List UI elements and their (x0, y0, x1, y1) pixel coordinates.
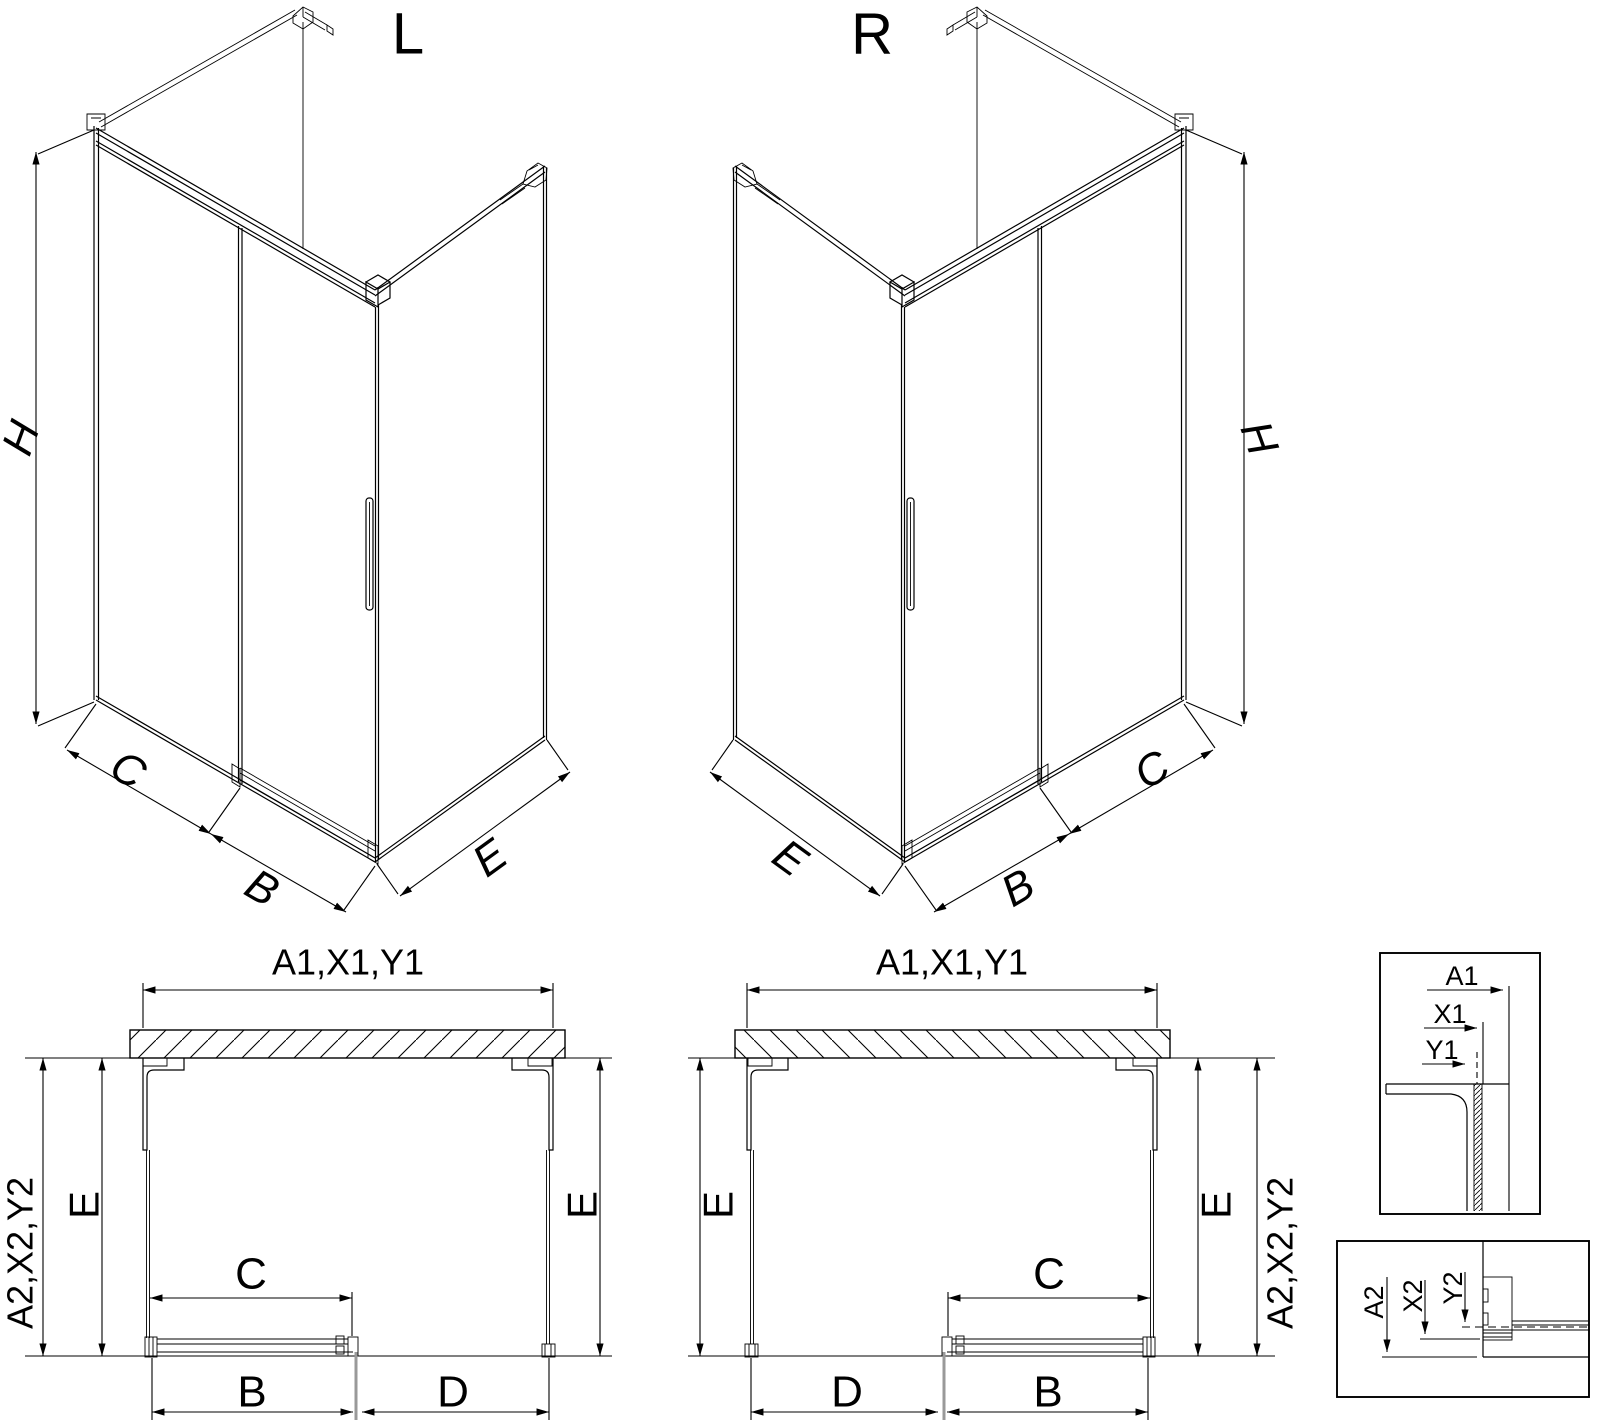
iso-left-dim-h: H (0, 414, 50, 461)
plan-left-dim-a1: A1,X1,Y1 (272, 942, 424, 983)
plan-right-dim-e-right: E (1193, 1191, 1240, 1219)
plan-right-dim-d: D (831, 1368, 863, 1417)
plan-left-dim-c: C (235, 1250, 267, 1299)
plan-right-dim-e-left: E (695, 1191, 742, 1219)
plan-left-dim-e-left: E (61, 1191, 108, 1219)
detail-x1-label: X1 (1433, 999, 1466, 1029)
plan-right-dim-c: C (1033, 1250, 1065, 1299)
technical-drawing-page: L H C B E R H C B E A1,X1,Y1 A2,X2,Y2 E … (0, 0, 1600, 1423)
plan-left-dim-e-right: E (559, 1191, 606, 1219)
detail-a2-label: A2 (1359, 1285, 1389, 1318)
shower-enclosure-diagram: L H C B E R H C B E A1,X1,Y1 A2,X2,Y2 E … (0, 0, 1600, 1423)
iso-right-dim-e: E (764, 830, 817, 887)
iso-right-dim-h: H (1231, 415, 1288, 462)
iso-right-dim-c: C (1126, 740, 1179, 799)
plan-right-dim-a1: A1,X1,Y1 (876, 942, 1028, 983)
plan-left-dim-d: D (437, 1368, 469, 1417)
plan-right-dim-a2: A2,X2,Y2 (1260, 1177, 1301, 1329)
iso-left-dim-b: B (237, 859, 287, 916)
detail-view-a2: A2 X2 Y2 (1337, 1241, 1589, 1397)
plan-view-left: A1,X1,Y1 A2,X2,Y2 E E C B D (0, 942, 612, 1421)
iso-right-title: R (851, 2, 893, 67)
detail-y2-label: Y2 (1438, 1271, 1468, 1304)
plan-left-dim-a2: A2,X2,Y2 (0, 1177, 41, 1329)
plan-right-dim-b: B (1033, 1368, 1062, 1417)
detail-view-a1: A1 X1 Y1 (1380, 953, 1540, 1214)
iso-left-dim-e: E (464, 829, 517, 886)
plan-view-right: A1,X1,Y1 A2,X2,Y2 E E C B D (688, 942, 1301, 1421)
detail-x2-label: X2 (1398, 1279, 1428, 1312)
iso-left-title: L (392, 2, 424, 67)
iso-view-right: R H C B E (710, 2, 1288, 917)
iso-right-dim-b: B (993, 859, 1043, 916)
detail-a1-label: A1 (1445, 961, 1478, 991)
iso-left-dim-c: C (102, 741, 155, 800)
plan-left-dim-b: B (237, 1368, 266, 1417)
iso-view-left: L H C B E (0, 2, 570, 917)
detail-y1-label: Y1 (1425, 1035, 1458, 1065)
